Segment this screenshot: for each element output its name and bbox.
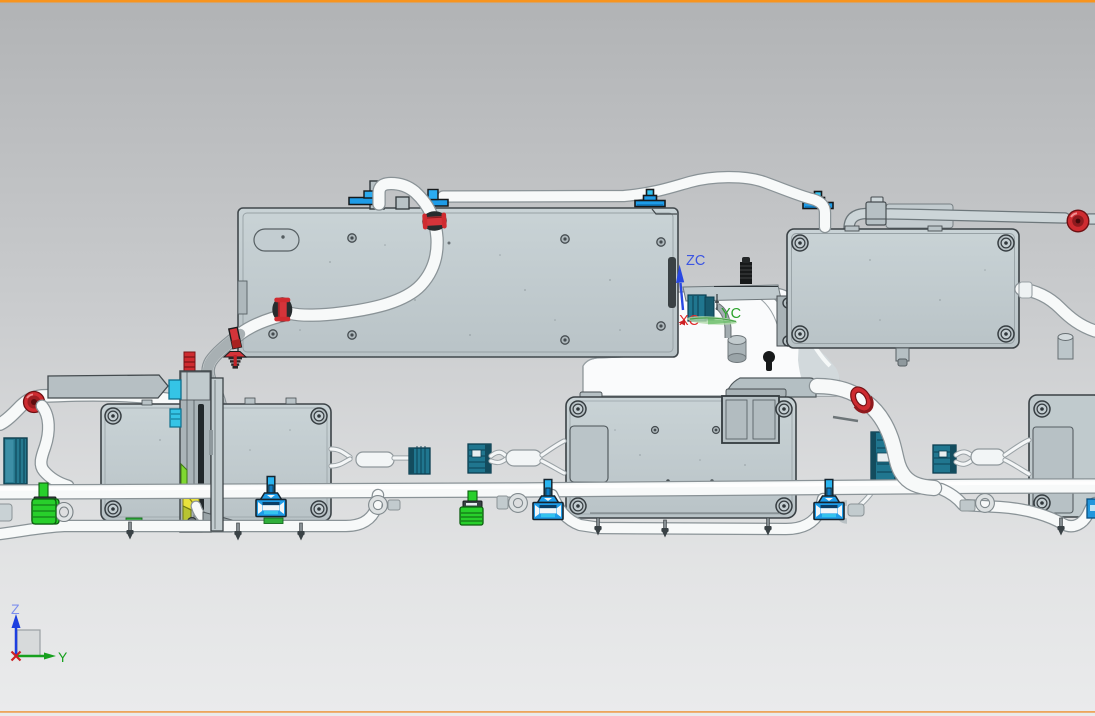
svg-text:ZC: ZC: [686, 253, 705, 269]
svg-text:Z: Z: [11, 601, 20, 617]
svg-text:Y: Y: [58, 649, 68, 665]
svg-text:YC: YC: [721, 306, 741, 322]
